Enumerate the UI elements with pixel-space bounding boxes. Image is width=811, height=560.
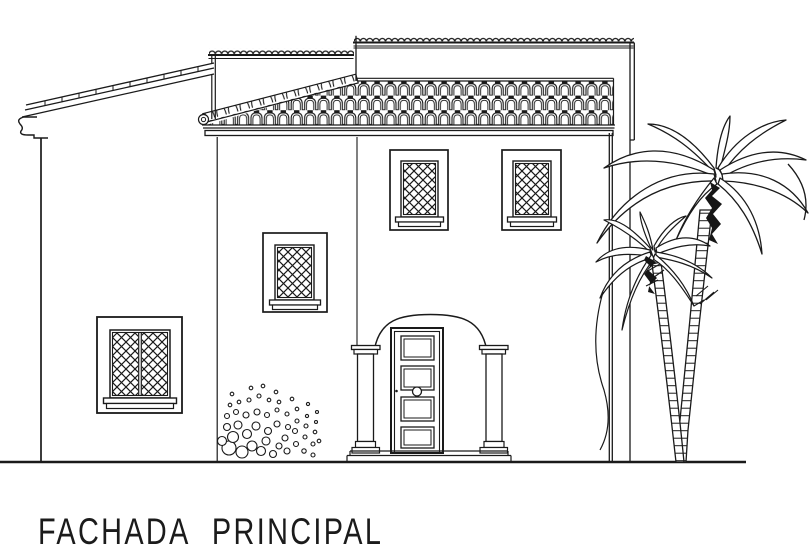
upper-right-window bbox=[502, 150, 561, 230]
ground-floor-window bbox=[97, 317, 182, 413]
elevation-drawing-canvas: FACHADA PRINCIPAL bbox=[0, 0, 811, 560]
facade-line-art bbox=[0, 0, 811, 560]
door-keyhole bbox=[395, 390, 398, 393]
window-sill bbox=[396, 217, 444, 222]
tower-window bbox=[263, 233, 327, 312]
window-sill bbox=[508, 217, 557, 222]
drawing-title: FACHADA PRINCIPAL bbox=[38, 511, 383, 553]
window-sill bbox=[270, 300, 321, 305]
door-knob bbox=[413, 387, 422, 396]
front-door bbox=[391, 328, 443, 453]
eave-tile-roll-end bbox=[199, 115, 209, 125]
window-sill bbox=[104, 398, 177, 404]
upper-left-window bbox=[390, 150, 448, 230]
